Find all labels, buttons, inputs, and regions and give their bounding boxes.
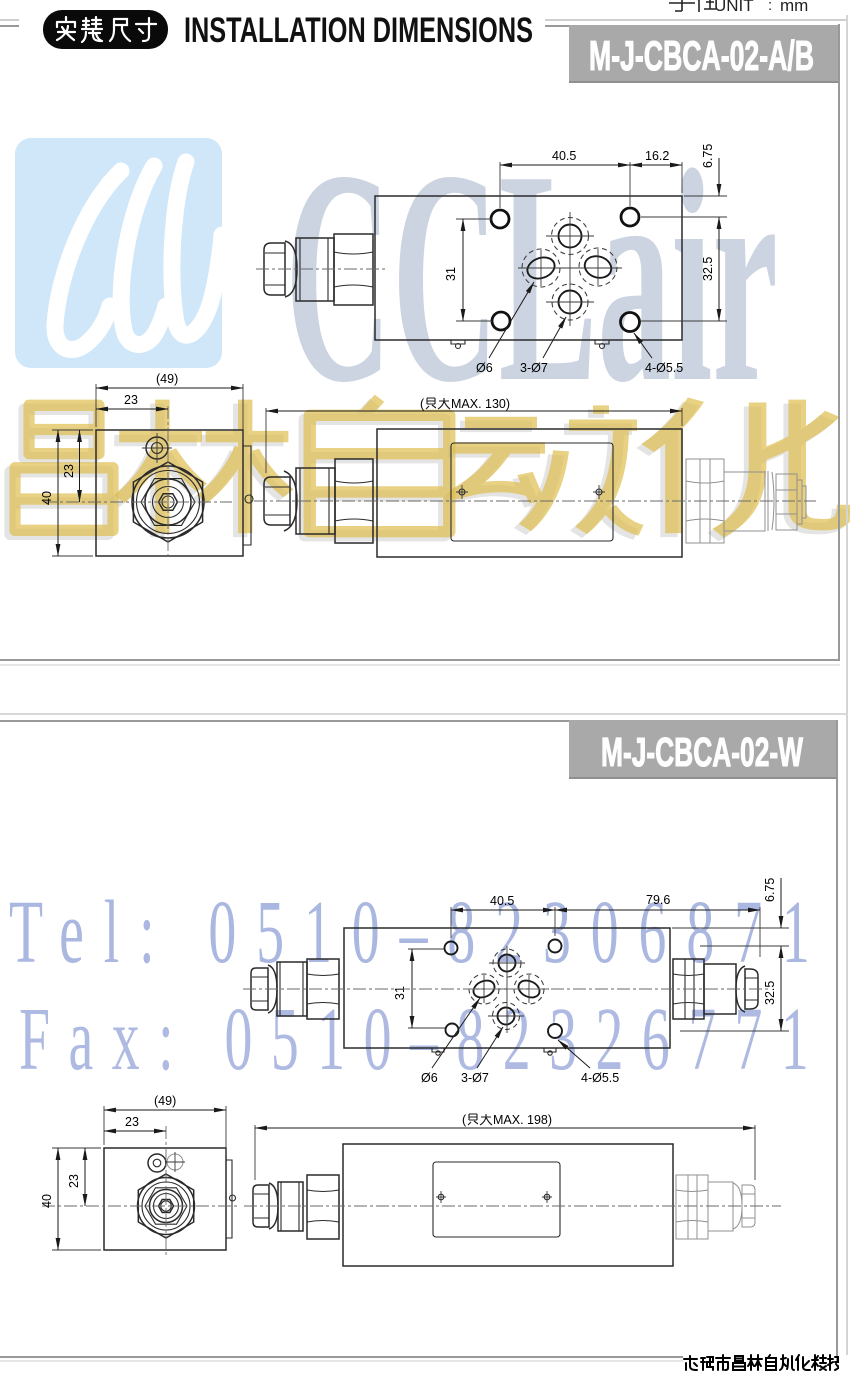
svg-text:M-J-CBCA-02-A/B: M-J-CBCA-02-A/B [589, 32, 814, 79]
svg-text:M-J-CBCA-02-W: M-J-CBCA-02-W [601, 729, 803, 775]
svg-text:mm: mm [780, 0, 808, 13]
svg-text:INSTALLATION DIMENSIONS: INSTALLATION DIMENSIONS [184, 11, 533, 50]
svg-text:UNIT: UNIT [714, 0, 754, 13]
svg-text::: : [768, 0, 772, 13]
